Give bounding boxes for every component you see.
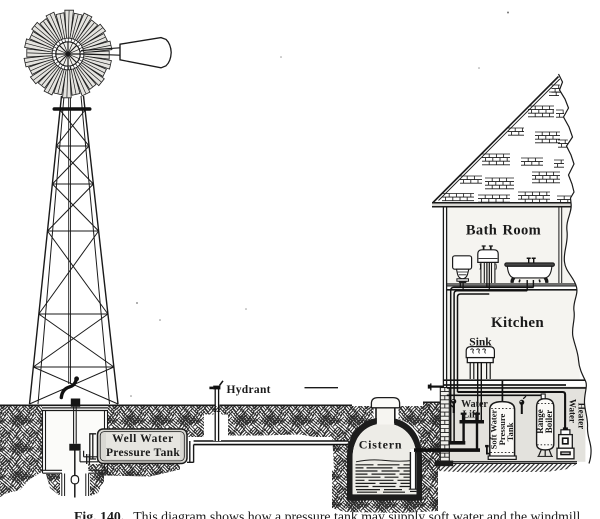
svg-text:Water: Water	[461, 399, 488, 410]
svg-text:Lift: Lift	[462, 409, 479, 420]
svg-text:Hydrant: Hydrant	[227, 384, 271, 396]
svg-text:Kitchen: Kitchen	[491, 315, 544, 331]
svg-text:Cistern: Cistern	[359, 438, 403, 452]
svg-text:Boiler: Boiler	[544, 410, 554, 434]
svg-text:Well Water: Well Water	[112, 433, 174, 445]
svg-text:Water: Water	[568, 399, 578, 423]
svg-text:Fig. 140.This diagram shows ho: Fig. 140.This diagram shows how a pressu…	[74, 509, 581, 519]
svg-text:Bath Room: Bath Room	[466, 223, 541, 239]
svg-text:Pressure Tank: Pressure Tank	[106, 447, 180, 459]
svg-text:Tank: Tank	[505, 422, 515, 441]
